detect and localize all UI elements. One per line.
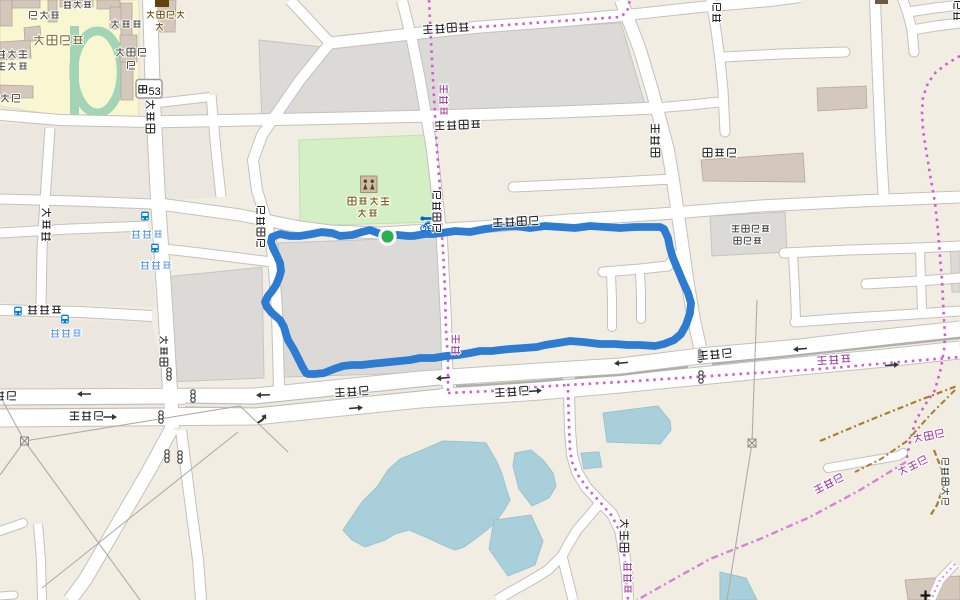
svg-text:53: 53 [149,86,161,98]
